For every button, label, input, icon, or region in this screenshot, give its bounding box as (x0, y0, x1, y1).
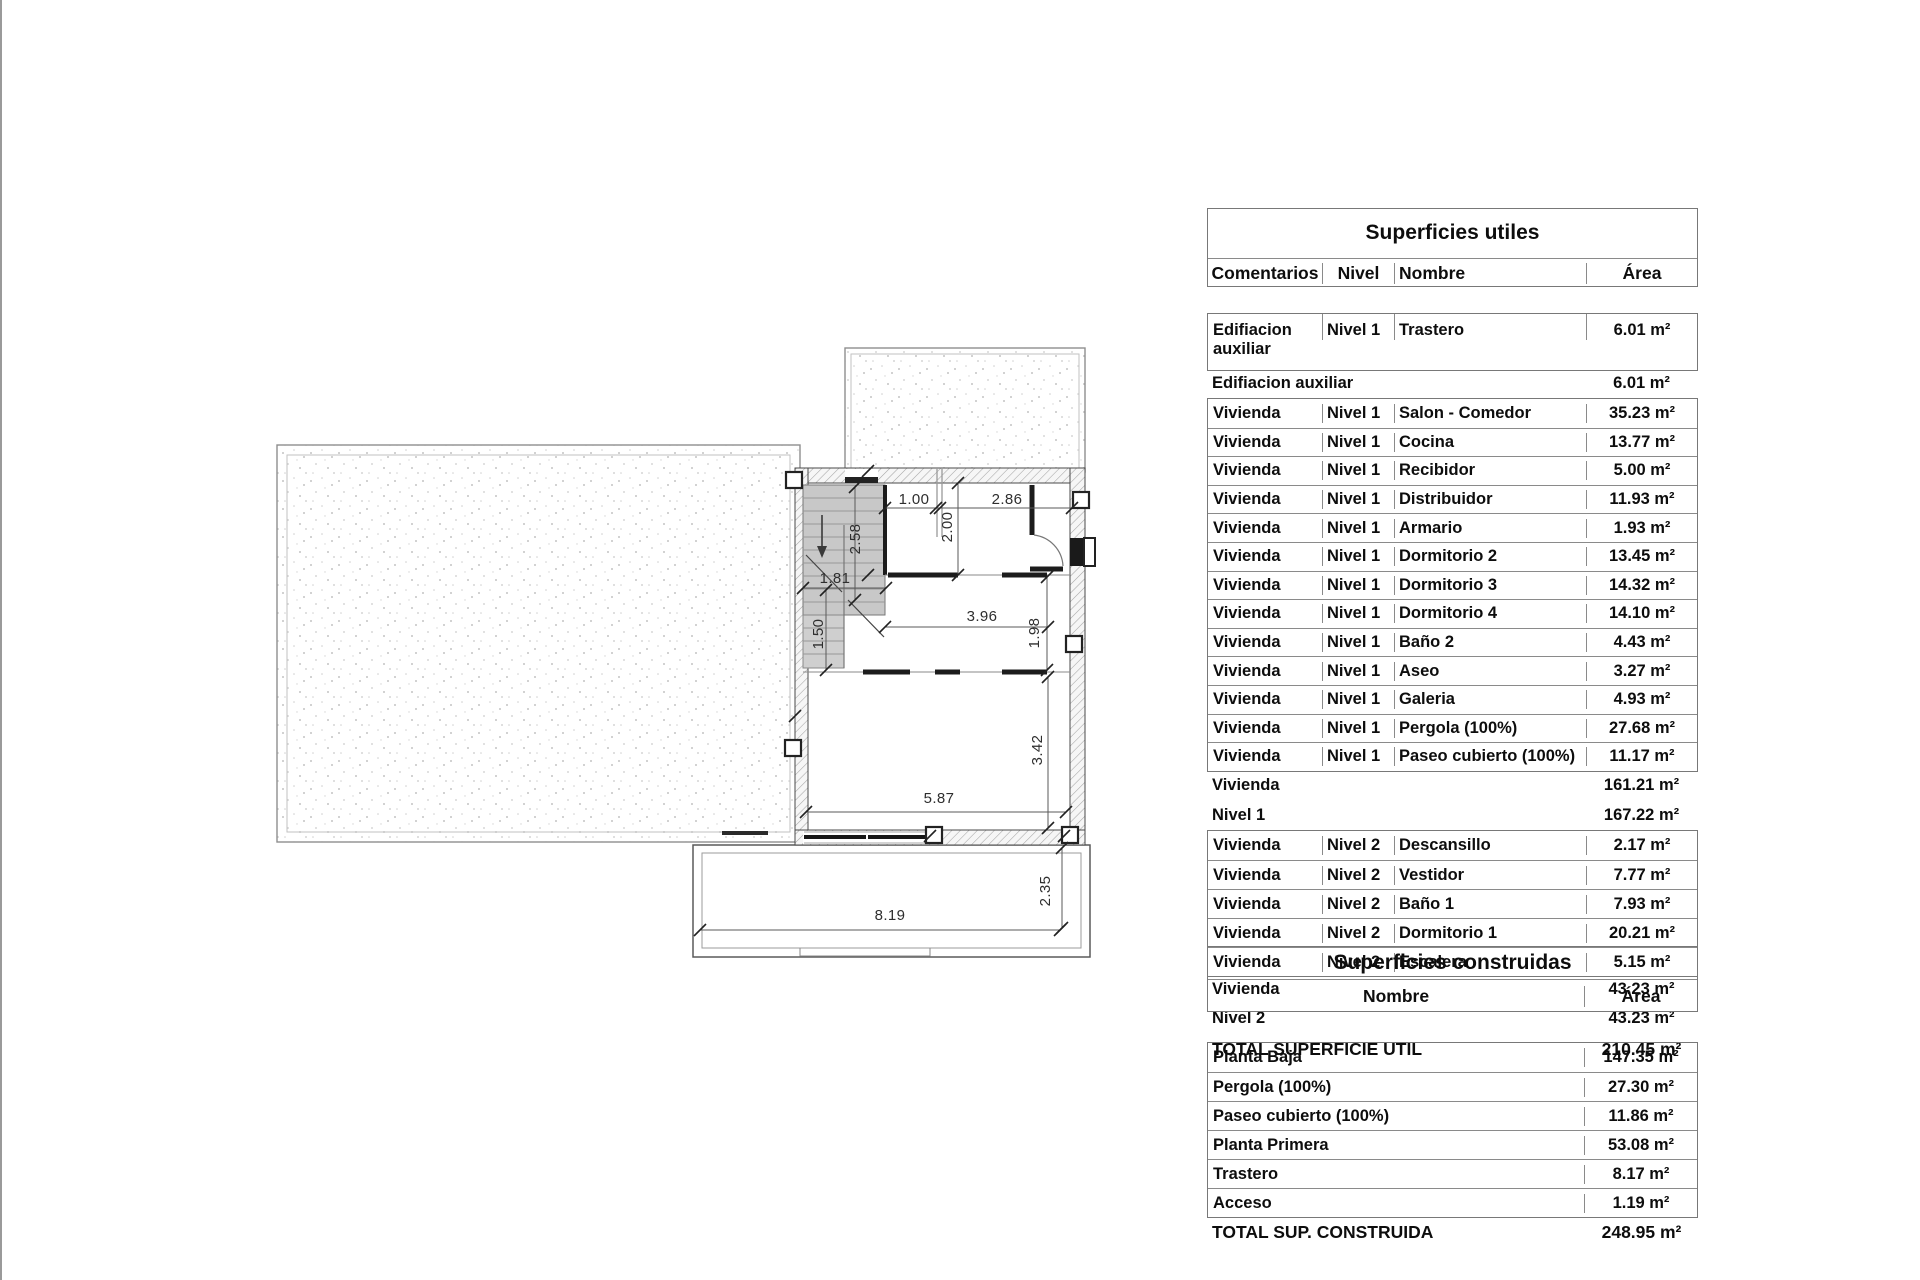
construidas-rows: Planta Baja 147.35 m² Pergola (100%) 27.… (1207, 1042, 1698, 1218)
cell-name: Recibidor (1394, 461, 1586, 480)
table-row: Planta Baja 147.35 m² (1208, 1043, 1697, 1072)
construidas-column-headers: Nombre Área (1208, 979, 1697, 1013)
summary-label: Nivel 1 (1207, 806, 1265, 825)
cell-area: 13.77 m² (1586, 433, 1697, 452)
cell-level: Nivel 2 (1322, 836, 1394, 855)
cell-area: 3.27 m² (1586, 662, 1697, 681)
cell-comment: Vivienda (1208, 866, 1322, 885)
pergola-outline (693, 845, 1090, 957)
cell-name: Cocina (1394, 433, 1586, 452)
cell-area: 1.19 m² (1584, 1194, 1697, 1213)
cell-comment: Vivienda (1208, 662, 1322, 681)
table-row: Vivienda Nivel 1 Paseo cubierto (100%) 1… (1208, 742, 1697, 771)
dim-label: 5.87 (917, 791, 961, 807)
cell-level: Nivel 1 (1322, 547, 1394, 566)
cell-name: Baño 1 (1394, 895, 1586, 914)
cell-area: 1.93 m² (1586, 519, 1697, 538)
dim-label: 2.86 (985, 492, 1029, 508)
col-nombre: Nombre (1394, 263, 1586, 284)
total-construida-row: TOTAL SUP. CONSTRUIDA 248.95 m² (1207, 1216, 1698, 1249)
cell-comment: Vivienda (1208, 719, 1322, 738)
utiles-group-nivel1: Vivienda Nivel 1 Salon - Comedor 35.23 m… (1207, 398, 1698, 772)
terrace-area (277, 445, 800, 842)
cell-comment: Vivienda (1208, 490, 1322, 509)
col-nivel: Nivel (1322, 263, 1394, 284)
cell-area: 13.45 m² (1586, 547, 1697, 566)
table-row: Vivienda Nivel 1 Recibidor 5.00 m² (1208, 456, 1697, 485)
cell-area: 6.01 m² (1586, 314, 1697, 340)
cell-level: Nivel 1 (1322, 490, 1394, 509)
cell-comment: Vivienda (1208, 404, 1322, 423)
cell-level: Nivel 1 (1322, 433, 1394, 452)
cell-area: 35.23 m² (1586, 404, 1697, 423)
col-area: Área (1584, 986, 1697, 1007)
dim-label: 2.58 (848, 517, 864, 561)
table-row: Vivienda Nivel 1 Dormitorio 2 13.45 m² (1208, 542, 1697, 571)
cell-area: 11.93 m² (1586, 490, 1697, 509)
dim-label: 1.00 (892, 492, 936, 508)
table-row: Vivienda Nivel 1 Dormitorio 4 14.10 m² (1208, 599, 1697, 628)
cell-name: Salon - Comedor (1394, 404, 1586, 423)
cell-level: Nivel 2 (1322, 866, 1394, 885)
cell-level: Nivel 1 (1322, 719, 1394, 738)
cell-comment: Vivienda (1208, 519, 1322, 538)
summary-label: Edifiacion auxiliar (1207, 374, 1353, 393)
cell-name: Dormitorio 4 (1394, 604, 1586, 623)
summary-area: 161.21 m² (1585, 776, 1698, 795)
summary-area: 167.22 m² (1585, 806, 1698, 825)
table-row: Vivienda Nivel 2 Vestidor 7.77 m² (1208, 860, 1697, 889)
dim-label: 3.42 (1030, 728, 1046, 772)
cell-name: Trastero (1208, 1165, 1584, 1184)
summary-area: 6.01 m² (1585, 374, 1698, 393)
col-nombre: Nombre (1208, 986, 1584, 1007)
floor-plan-document: 1.00 2.86 2.00 2.58 1.81 3.96 1.98 1.50 … (0, 0, 1920, 1280)
summary-row: Nivel 1 167.22 m² (1207, 800, 1698, 830)
cell-name: Pergola (100%) (1394, 719, 1586, 738)
cell-comment: Vivienda (1208, 747, 1322, 766)
cell-name: Pergola (100%) (1208, 1078, 1584, 1097)
cell-name: Planta Baja (1208, 1048, 1584, 1067)
col-comentarios: Comentarios (1208, 263, 1322, 284)
cell-area: 14.32 m² (1586, 576, 1697, 595)
cell-area: 11.86 m² (1584, 1107, 1697, 1126)
total-area: 248.95 m² (1585, 1222, 1698, 1243)
cell-name: Dormitorio 2 (1394, 547, 1586, 566)
cell-comment: Vivienda (1208, 604, 1322, 623)
utiles-group-aux: Edifiacion auxiliar Nivel 1 Trastero 6.0… (1207, 313, 1698, 371)
table-row: Vivienda Nivel 1 Pergola (100%) 27.68 m² (1208, 714, 1697, 743)
cell-level: Nivel 1 (1322, 633, 1394, 652)
table-row: Paseo cubierto (100%) 11.86 m² (1208, 1101, 1697, 1130)
cell-level: Nivel 1 (1322, 519, 1394, 538)
cell-area: 2.17 m² (1586, 836, 1697, 855)
cell-area: 7.93 m² (1586, 895, 1697, 914)
cell-name: Acceso (1208, 1194, 1584, 1213)
cell-name: Trastero (1394, 314, 1586, 340)
table-row: Pergola (100%) 27.30 m² (1208, 1072, 1697, 1101)
table-row: Edifiacion auxiliar Nivel 1 Trastero 6.0… (1208, 314, 1697, 370)
table-row: Vivienda Nivel 1 Distribuidor 11.93 m² (1208, 485, 1697, 514)
table-row: Vivienda Nivel 2 Baño 1 7.93 m² (1208, 889, 1697, 918)
dim-label: 8.19 (868, 908, 912, 924)
cell-area: 8.17 m² (1584, 1165, 1697, 1184)
cell-area: 147.35 m² (1584, 1048, 1697, 1067)
total-label: TOTAL SUP. CONSTRUIDA (1207, 1222, 1433, 1243)
dim-label: 2.00 (940, 505, 956, 549)
cell-area: 5.00 m² (1586, 461, 1697, 480)
cell-area: 14.10 m² (1586, 604, 1697, 623)
cell-level: Nivel 1 (1322, 314, 1394, 340)
cell-level: Nivel 1 (1322, 690, 1394, 709)
cell-name: Paseo cubierto (100%) (1394, 747, 1586, 766)
utiles-column-headers: Comentarios Nivel Nombre Área (1208, 258, 1697, 288)
cell-area: 4.43 m² (1586, 633, 1697, 652)
cell-area: 4.93 m² (1586, 690, 1697, 709)
table-row: Acceso 1.19 m² (1208, 1188, 1697, 1217)
table-row: Trastero 8.17 m² (1208, 1159, 1697, 1188)
cell-area: 27.30 m² (1584, 1078, 1697, 1097)
cell-name: Armario (1394, 519, 1586, 538)
table-row: Vivienda Nivel 2 Descansillo 2.17 m² (1208, 831, 1697, 860)
cell-level: Nivel 2 (1322, 924, 1394, 943)
cell-comment: Vivienda (1208, 547, 1322, 566)
table-row: Vivienda Nivel 1 Galeria 4.93 m² (1208, 685, 1697, 714)
cell-level: Nivel 1 (1322, 662, 1394, 681)
table-row: Vivienda Nivel 1 Dormitorio 3 14.32 m² (1208, 571, 1697, 600)
cell-name: Baño 2 (1394, 633, 1586, 652)
cell-name: Galeria (1394, 690, 1586, 709)
construidas-header-box: Superficies construidas Nombre Área (1207, 946, 1698, 1012)
cell-name: Dormitorio 3 (1394, 576, 1586, 595)
cell-area: 20.21 m² (1586, 924, 1697, 943)
cell-comment: Edifiacion auxiliar (1208, 314, 1322, 359)
cell-name: Descansillo (1394, 836, 1586, 855)
dim-label: 1.81 (813, 571, 857, 587)
cell-name: Paseo cubierto (100%) (1208, 1107, 1584, 1126)
cell-area: 7.77 m² (1586, 866, 1697, 885)
cell-level: Nivel 1 (1322, 747, 1394, 766)
table-row: Vivienda Nivel 1 Salon - Comedor 35.23 m… (1208, 399, 1697, 428)
table-row: Vivienda Nivel 2 Dormitorio 1 20.21 m² (1208, 918, 1697, 947)
cell-level: Nivel 1 (1322, 576, 1394, 595)
col-area: Área (1586, 263, 1697, 284)
table-row: Planta Primera 53.08 m² (1208, 1130, 1697, 1159)
cell-comment: Vivienda (1208, 924, 1322, 943)
cell-area: 11.17 m² (1586, 747, 1697, 766)
cell-comment: Vivienda (1208, 690, 1322, 709)
cell-comment: Vivienda (1208, 895, 1322, 914)
dim-label: 2.35 (1038, 869, 1054, 913)
cell-area: 53.08 m² (1584, 1136, 1697, 1155)
dim-label: 1.50 (811, 612, 827, 656)
cell-level: Nivel 2 (1322, 895, 1394, 914)
utiles-title: Superficies utiles (1208, 209, 1697, 258)
summary-label: Vivienda (1207, 776, 1280, 795)
table-row: Vivienda Nivel 1 Armario 1.93 m² (1208, 513, 1697, 542)
cell-name: Vestidor (1394, 866, 1586, 885)
dim-label: 3.96 (960, 609, 1004, 625)
cell-comment: Vivienda (1208, 633, 1322, 652)
cell-comment: Vivienda (1208, 461, 1322, 480)
summary-row: Edifiacion auxiliar 6.01 m² (1207, 369, 1698, 398)
cell-level: Nivel 1 (1322, 404, 1394, 423)
cell-area: 27.68 m² (1586, 719, 1697, 738)
cell-name: Planta Primera (1208, 1136, 1584, 1155)
summary-row: Vivienda 161.21 m² (1207, 770, 1698, 800)
cell-comment: Vivienda (1208, 433, 1322, 452)
cell-level: Nivel 1 (1322, 604, 1394, 623)
utiles-header-box: Superficies utiles Comentarios Nivel Nom… (1207, 208, 1698, 287)
construidas-title: Superficies construidas (1208, 947, 1697, 979)
cell-name: Dormitorio 1 (1394, 924, 1586, 943)
cell-comment: Vivienda (1208, 576, 1322, 595)
cell-comment: Vivienda (1208, 836, 1322, 855)
table-row: Vivienda Nivel 1 Baño 2 4.43 m² (1208, 628, 1697, 657)
upper-patio-area (845, 348, 1085, 472)
cell-name: Aseo (1394, 662, 1586, 681)
table-row: Vivienda Nivel 1 Aseo 3.27 m² (1208, 656, 1697, 685)
cell-name: Distribuidor (1394, 490, 1586, 509)
cell-level: Nivel 1 (1322, 461, 1394, 480)
dim-label: 1.98 (1027, 611, 1043, 655)
table-row: Vivienda Nivel 1 Cocina 13.77 m² (1208, 428, 1697, 457)
